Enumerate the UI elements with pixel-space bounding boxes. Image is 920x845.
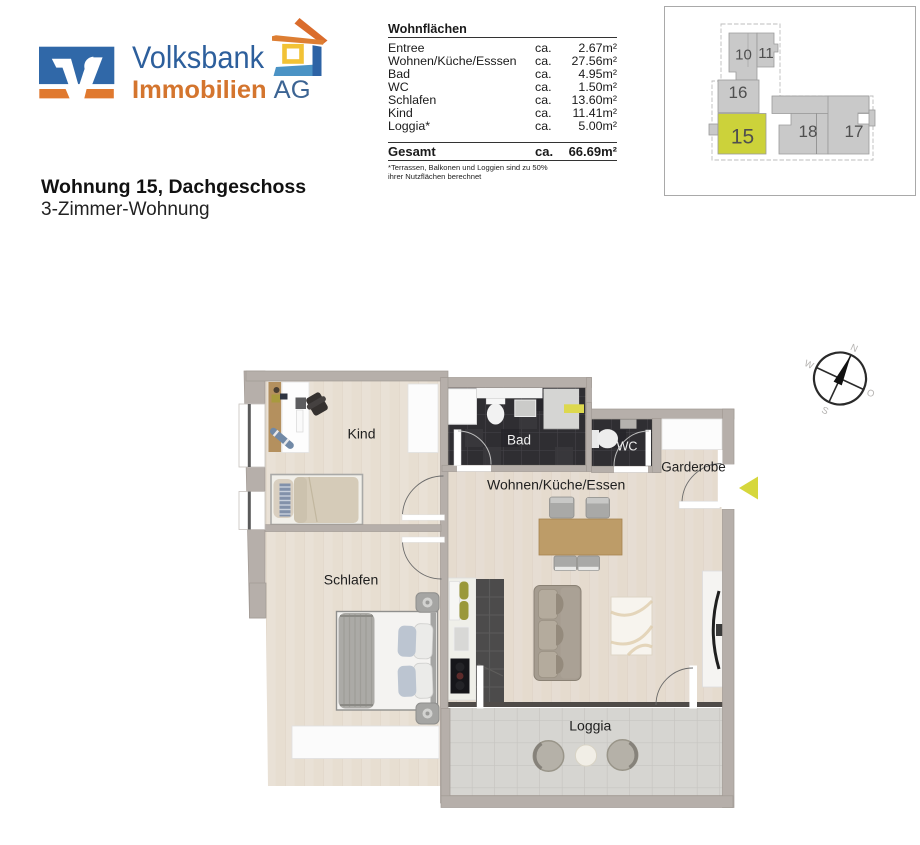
svg-text:11: 11 (758, 45, 774, 62)
svg-text:W: W (802, 358, 815, 372)
svg-text:Schlafen: Schlafen (324, 572, 378, 588)
svg-text:WC: WC (617, 440, 638, 454)
svg-text:Bad: Bad (507, 433, 531, 448)
svg-text:Garderobe: Garderobe (661, 460, 726, 475)
svg-text:17: 17 (845, 122, 864, 141)
svg-text:O: O (865, 387, 876, 400)
svg-text:Loggia: Loggia (569, 718, 611, 734)
svg-text:Wohnen/Küche/Essen: Wohnen/Küche/Essen (487, 477, 625, 493)
svg-text:S: S (820, 405, 830, 418)
svg-text:16: 16 (729, 83, 748, 102)
svg-text:15: 15 (731, 126, 754, 149)
svg-text:Kind: Kind (347, 426, 375, 442)
svg-text:N: N (849, 342, 860, 355)
svg-text:10: 10 (735, 47, 752, 64)
svg-text:18: 18 (799, 122, 818, 141)
